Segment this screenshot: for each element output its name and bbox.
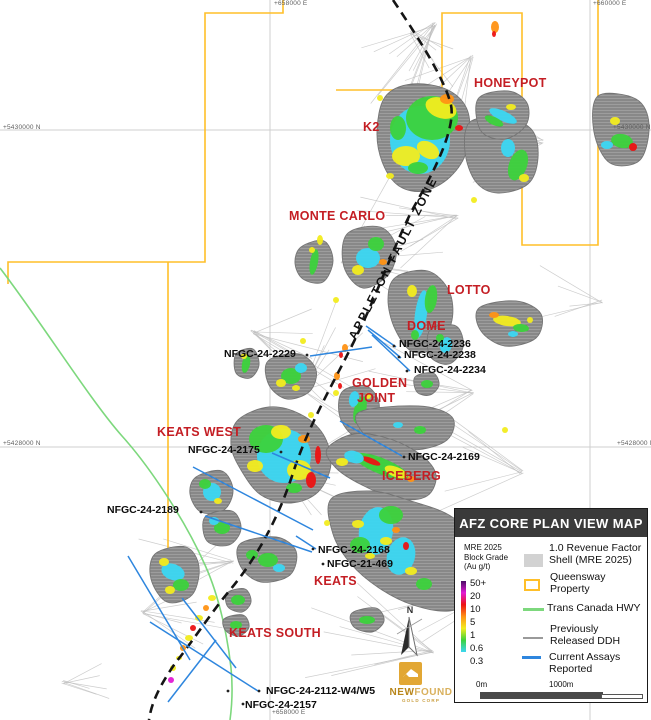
drill-label-nfgc-24-2169: NFGC-24-2169 [408,452,480,463]
drill-label-nfgc-24-2229: NFGC-24-2229 [224,349,296,360]
scalebar-0m-label: 0m [476,680,487,689]
current-assays-swatch [522,656,541,659]
drill-label-nfgc-24-2112-w4-w5: NFGC-24-2112-W4/W5 [266,686,375,697]
zone-label-lotto: LOTTO [447,284,491,297]
zone-label-keats: KEATS [314,575,357,588]
grade-header-line3: (Au g/t) [464,562,508,572]
legend-title: AFZ CORE PLAN VIEW MAP [455,509,647,537]
zone-label-iceberg: ICEBERG [382,470,441,483]
grade-header-line2: Block Grade [464,553,508,563]
logo-text-found: FOUND [414,687,452,698]
grade-tick-1: 1 [470,630,486,643]
grade-colorbar-ticks: 50+ 20 10 5 1 0.6 0.3 [470,578,486,669]
coordinate-label-4: +5428000 N [3,441,41,448]
afz-core-plan-view-map: +658000 E+660000 E+5430000 N+5430000 N+5… [0,0,651,720]
trans-canada-hwy-swatch [523,608,544,611]
legend: AFZ CORE PLAN VIEW MAP MRE 2025 Block Gr… [454,508,648,703]
coordinate-label-5: +5428000 N [617,441,651,448]
drill-label-nfgc-21-469: NFGC-21-469 [327,559,393,570]
drill-label-nfgc-24-2236: NFGC-24-2236 [399,339,471,350]
drill-label-nfgc-24-2238: NFGC-24-2238 [404,350,476,361]
grade-tick-20: 20 [470,591,486,604]
grade-tick-06: 0.6 [470,643,486,656]
logo-text-new: NEW [390,687,415,698]
legend-item-current-assays: Current Assays Reported [549,652,620,675]
legend-item-queensway-property: Queensway Property [550,572,605,595]
grade-header-line1: MRE 2025 [464,543,508,553]
zone-label-dome: DOME [407,320,446,333]
zone-label-golden: GOLDEN [352,377,407,390]
previously-released-ddh-swatch [523,637,543,639]
grade-tick-5: 5 [470,617,486,630]
zone-label-keats-south: KEATS SOUTH [229,627,321,640]
drill-label-nfgc-24-2168: NFGC-24-2168 [318,545,390,556]
scalebar-dark-segment [480,692,603,699]
drill-label-nfgc-24-2234: NFGC-24-2234 [414,365,486,376]
logo-text-goldcorp: GOLD CORP [382,698,460,703]
drill-label-nfgc-24-2175: NFGC-24-2175 [188,445,260,456]
scalebar-1000m-label: 1000m [549,680,573,689]
zone-label-k2: K2 [363,121,380,134]
grade-colorbar [461,581,466,652]
coordinate-label-1: +660000 E [593,1,626,8]
queensway-property-swatch [524,579,540,591]
zone-label-monte-carlo: MONTE CARLO [289,210,385,223]
legend-item-previously-released-ddh: Previously Released DDH [550,624,620,647]
legend-item-revenue-shell: 1.0 Revenue Factor Shell (MRE 2025) [549,543,641,566]
scalebar-light-segment [601,694,643,699]
drill-label-nfgc-24-2157: NFGC-24-2157 [245,700,317,711]
zone-label-honeypot: HONEYPOT [474,77,547,90]
grade-tick-03: 0.3 [470,656,486,669]
coordinate-label-3: +5430000 N [613,125,651,132]
coordinate-label-0: +658000 E [274,1,307,8]
zone-label-joint: JOINT [357,392,395,405]
newfound-logo-wordmark: NEWFOUND [382,687,460,698]
coordinate-label-2: +5430000 N [3,125,41,132]
north-arrow-icon [395,614,425,658]
legend-grade-header: MRE 2025 Block Grade (Au g/t) [464,543,508,572]
newfound-gold-logo: NEWFOUND GOLD CORP [382,660,460,708]
legend-item-trans-canada-hwy: Trans Canada HWY [547,603,641,615]
grade-tick-10: 10 [470,604,486,617]
grade-tick-50plus: 50+ [470,578,486,591]
revenue-shell-swatch [524,554,543,567]
north-arrow: N [395,605,425,657]
zone-label-keats-west: KEATS WEST [157,426,241,439]
newfound-logo-icon [399,662,422,685]
drill-label-nfgc-24-2189: NFGC-24-2189 [107,505,179,516]
